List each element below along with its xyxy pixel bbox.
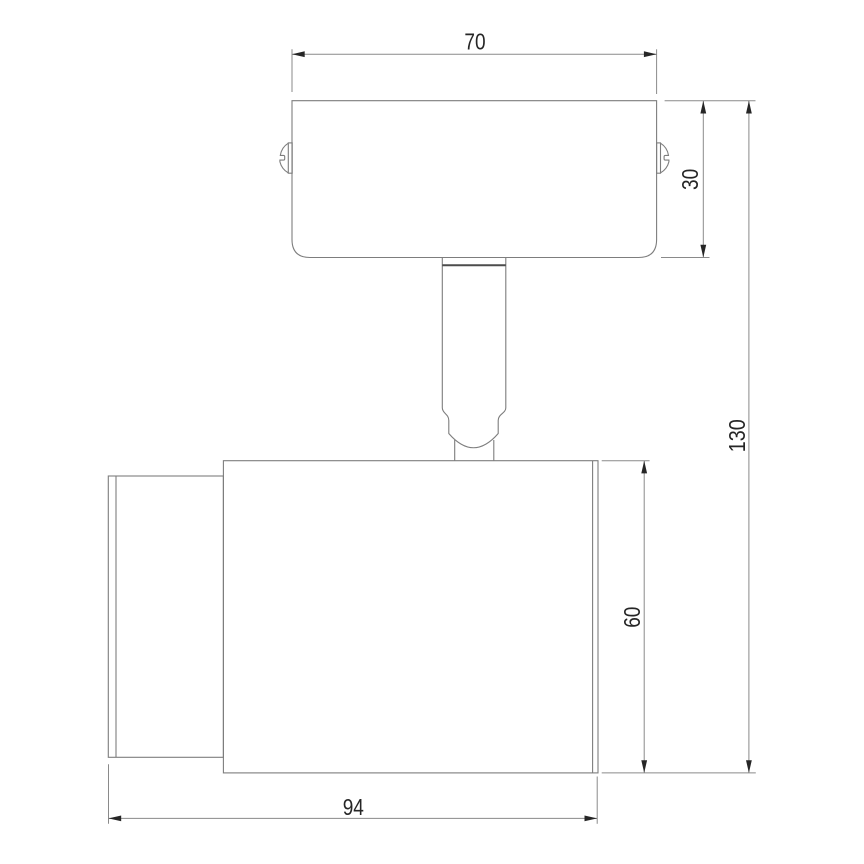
svg-text:70: 70 <box>464 29 485 55</box>
svg-text:30: 30 <box>677 169 703 190</box>
svg-text:130: 130 <box>724 419 750 452</box>
svg-text:94: 94 <box>343 794 364 820</box>
svg-text:60: 60 <box>619 607 645 628</box>
